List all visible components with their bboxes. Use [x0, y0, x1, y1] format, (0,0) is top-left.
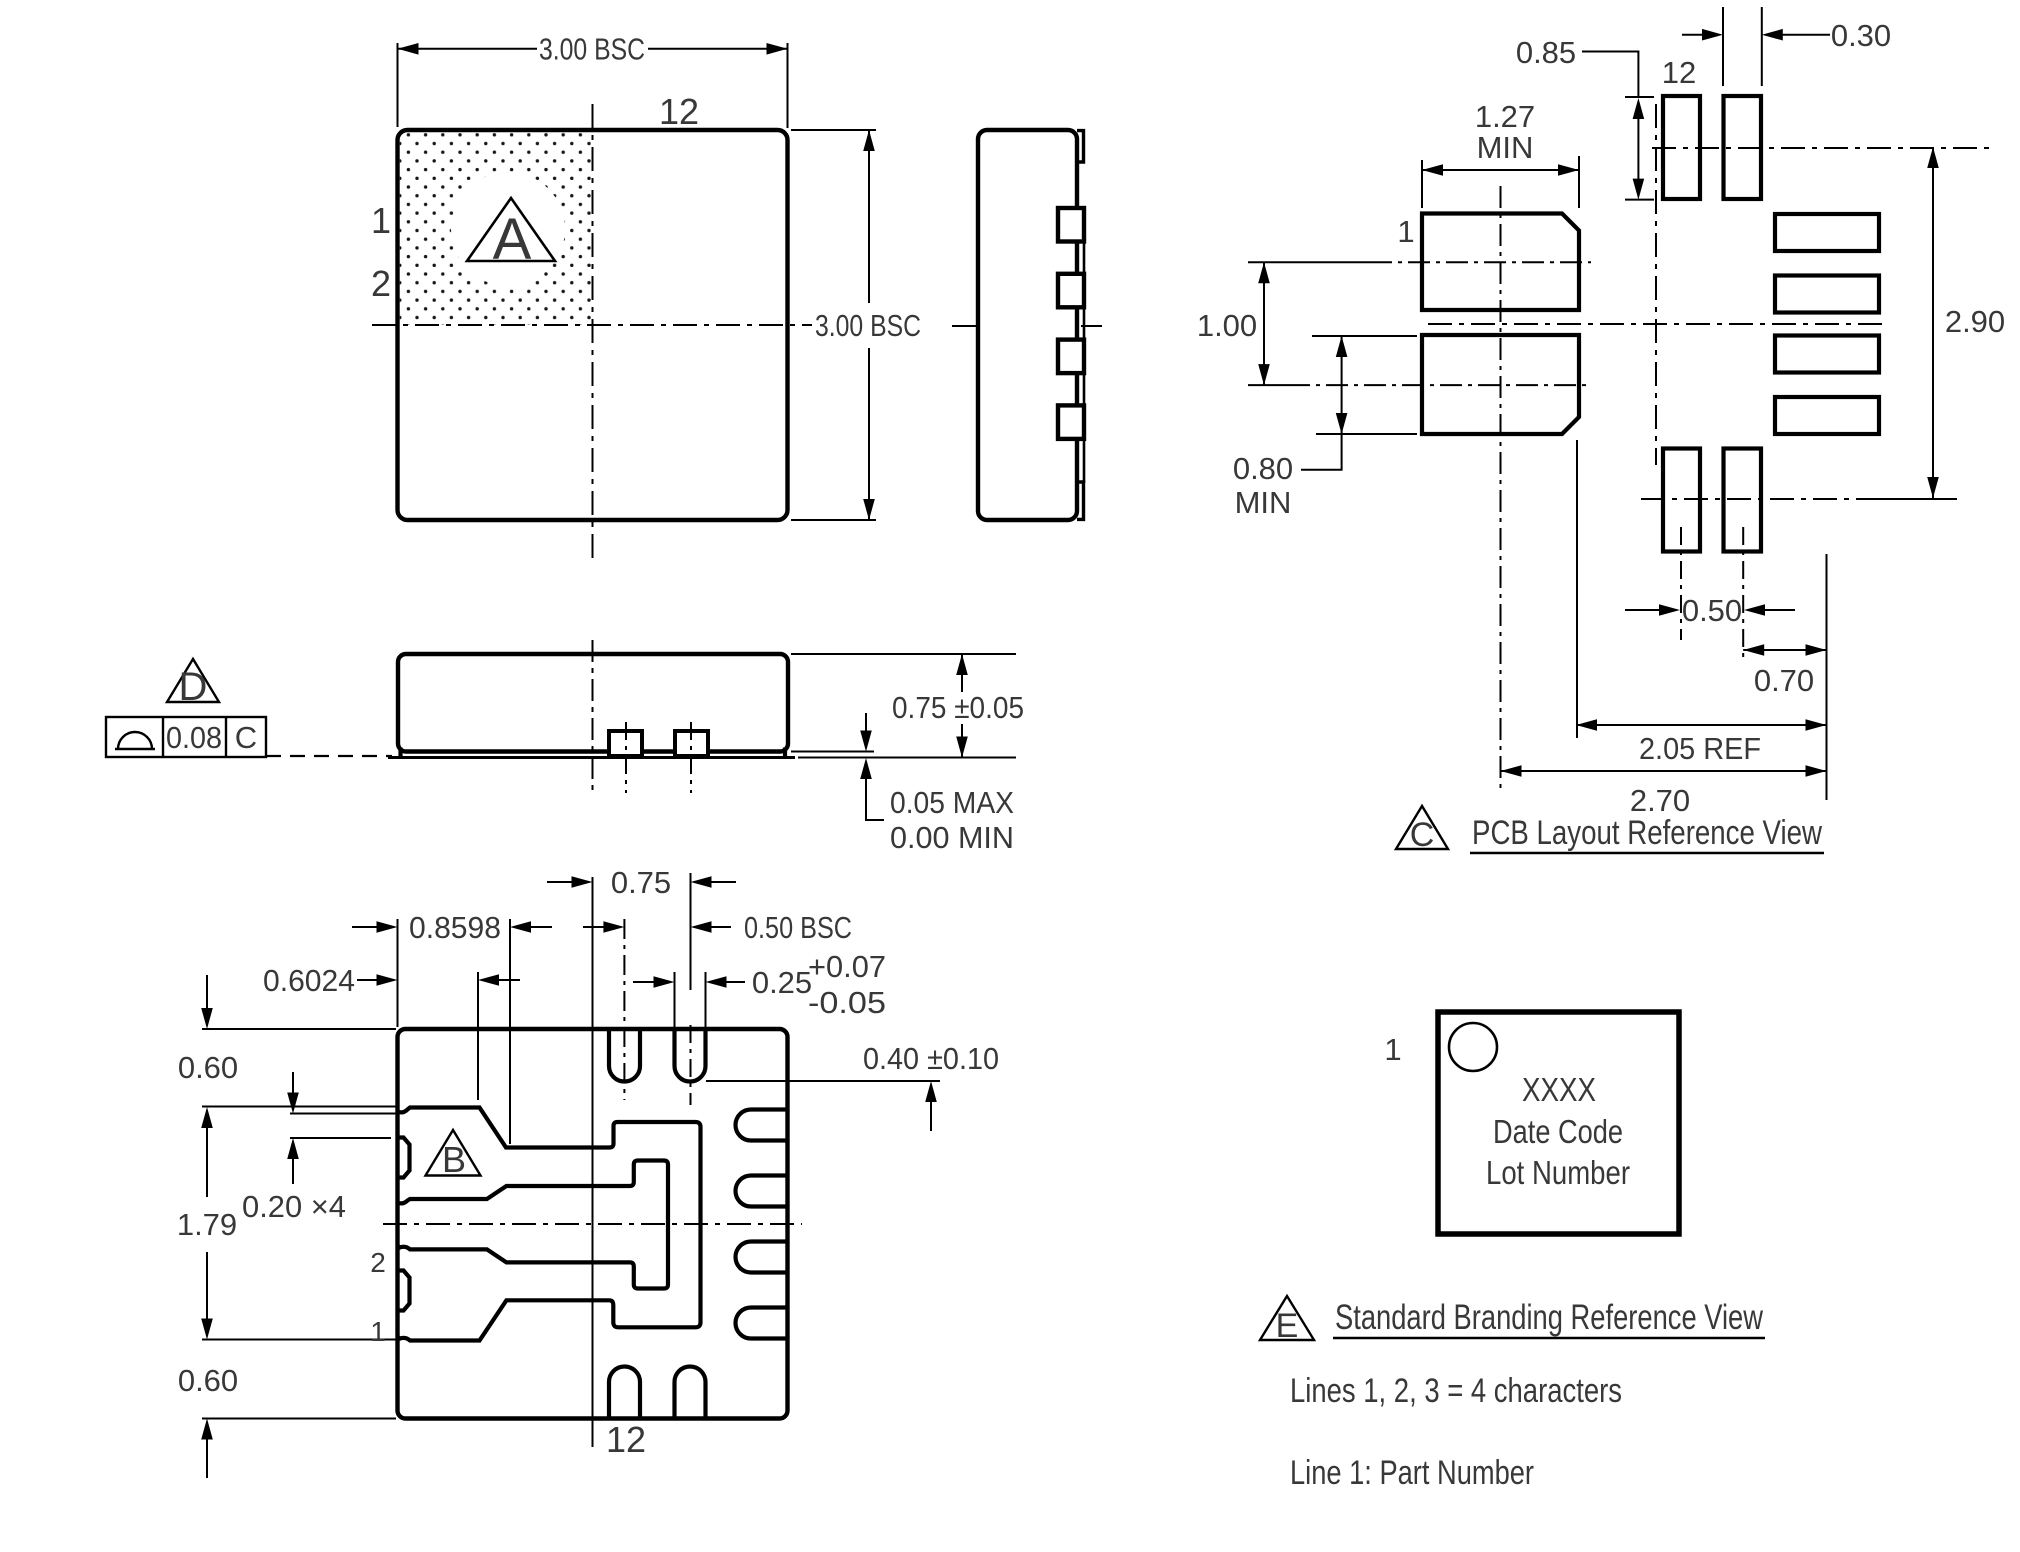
svg-text:0.50: 0.50	[1682, 593, 1742, 628]
svg-text:12: 12	[606, 1419, 646, 1460]
svg-text:1: 1	[1384, 1032, 1401, 1067]
svg-text:2.90: 2.90	[1945, 304, 2005, 339]
svg-text:2.70: 2.70	[1630, 783, 1690, 818]
svg-text:-0.05: -0.05	[808, 985, 886, 1020]
svg-text:0.80: 0.80	[1233, 451, 1293, 486]
svg-text:E: E	[1276, 1307, 1299, 1345]
svg-text:A: A	[493, 207, 532, 272]
svg-text:C: C	[1410, 816, 1435, 854]
svg-text:1.27: 1.27	[1475, 99, 1535, 134]
svg-text:3.00 BSC: 3.00 BSC	[815, 308, 921, 343]
svg-text:1.00: 1.00	[1197, 308, 1257, 343]
svg-text:PCB Layout Reference View: PCB Layout Reference View	[1472, 814, 1822, 852]
svg-text:MIN: MIN	[1477, 130, 1534, 165]
svg-text:12: 12	[659, 91, 699, 132]
svg-text:0.40 ±0.10: 0.40 ±0.10	[863, 1041, 999, 1076]
svg-text:0.30: 0.30	[1831, 18, 1891, 53]
svg-text:C: C	[235, 720, 257, 755]
svg-text:0.25: 0.25	[752, 965, 812, 1000]
svg-text:0.50 BSC: 0.50 BSC	[744, 910, 852, 945]
svg-text:2.05 REF: 2.05 REF	[1639, 731, 1761, 766]
svg-text:Line 1: Part Number: Line 1: Part Number	[1290, 1454, 1534, 1492]
svg-text:0.08: 0.08	[166, 720, 222, 755]
svg-text:0.70: 0.70	[1754, 663, 1814, 698]
svg-text:1: 1	[1397, 214, 1414, 249]
svg-text:D: D	[179, 665, 208, 709]
svg-text:1: 1	[370, 1316, 386, 1347]
svg-text:1: 1	[371, 200, 391, 241]
svg-text:Lines 1, 2, 3 = 4 characters: Lines 1, 2, 3 = 4 characters	[1290, 1372, 1622, 1410]
svg-text:Standard Branding Reference Vi: Standard Branding Reference View	[1335, 1298, 1764, 1337]
svg-text:2: 2	[371, 263, 391, 304]
svg-text:0.8598: 0.8598	[409, 910, 501, 945]
svg-text:0.75: 0.75	[611, 865, 671, 900]
svg-text:0.05 MAX: 0.05 MAX	[890, 785, 1014, 820]
svg-text:Date Code: Date Code	[1493, 1113, 1623, 1150]
svg-text:0.20 ×4: 0.20 ×4	[242, 1189, 346, 1224]
svg-text:Lot Number: Lot Number	[1486, 1154, 1630, 1191]
svg-text:0.60: 0.60	[178, 1363, 238, 1398]
svg-text:0.00 MIN: 0.00 MIN	[890, 820, 1014, 855]
svg-text:0.6024: 0.6024	[263, 963, 355, 998]
svg-text:MIN: MIN	[1235, 485, 1292, 520]
svg-text:0.85: 0.85	[1516, 35, 1576, 70]
svg-text:12: 12	[1662, 55, 1696, 90]
svg-text:1.79: 1.79	[177, 1207, 237, 1242]
svg-text:+0.07: +0.07	[808, 949, 886, 984]
svg-text:2: 2	[370, 1247, 386, 1278]
svg-text:B: B	[442, 1139, 466, 1180]
svg-text:0.75 ±0.05: 0.75 ±0.05	[892, 690, 1024, 725]
svg-text:3.00 BSC: 3.00 BSC	[539, 32, 645, 67]
svg-text:0.60: 0.60	[178, 1050, 238, 1085]
svg-text:XXXX: XXXX	[1522, 1071, 1596, 1108]
